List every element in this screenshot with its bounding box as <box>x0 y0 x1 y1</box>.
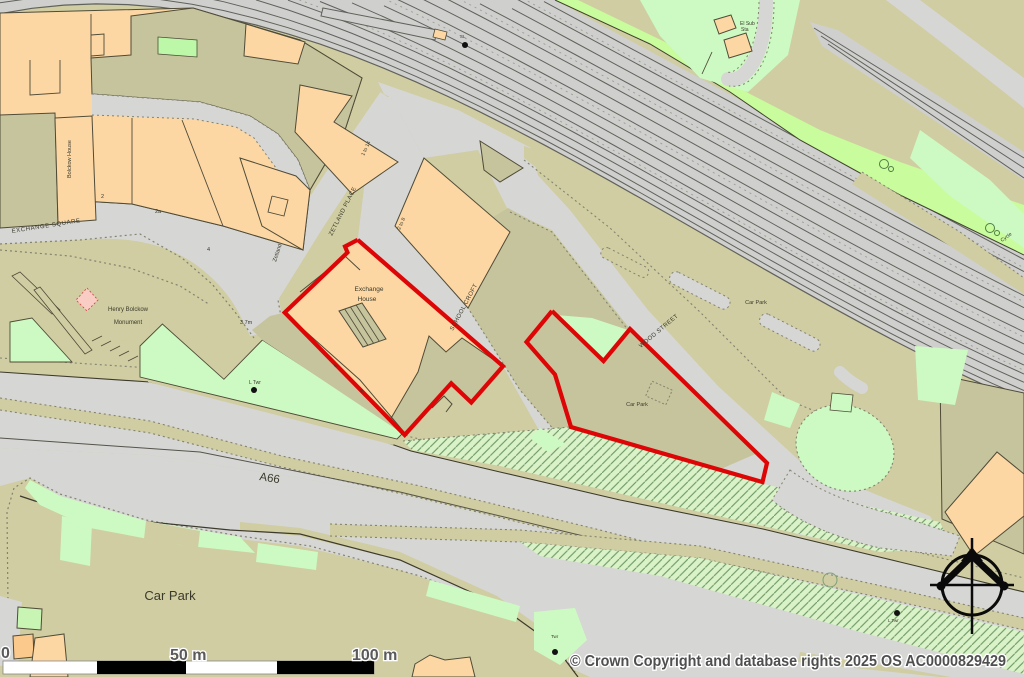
svg-text:3.7m: 3.7m <box>240 320 253 326</box>
svg-text:SL: SL <box>460 34 466 39</box>
svg-text:Bolckow House: Bolckow House <box>67 140 73 178</box>
svg-text:Monument: Monument <box>114 320 143 326</box>
svg-text:100 m: 100 m <box>352 647 397 664</box>
svg-text:L Twr: L Twr <box>888 618 899 623</box>
svg-text:Exchange: Exchange <box>355 286 384 293</box>
svg-text:© Crown Copyright and database: © Crown Copyright and database rights 20… <box>570 653 1006 670</box>
svg-text:Henry Bolckow: Henry Bolckow <box>108 307 149 313</box>
svg-text:Car Park: Car Park <box>626 402 648 408</box>
svg-text:2: 2 <box>101 194 104 200</box>
svg-text:L Twr: L Twr <box>249 380 261 386</box>
svg-text:50 m: 50 m <box>170 647 206 664</box>
svg-text:Car Park: Car Park <box>745 300 767 306</box>
svg-text:0: 0 <box>1 645 10 662</box>
svg-text:House: House <box>358 296 377 303</box>
svg-text:Twr: Twr <box>551 634 559 639</box>
svg-text:4: 4 <box>207 247 210 253</box>
svg-text:Sta: Sta <box>741 27 749 33</box>
svg-text:Car Park: Car Park <box>144 588 196 603</box>
svg-text:2a: 2a <box>155 209 162 215</box>
